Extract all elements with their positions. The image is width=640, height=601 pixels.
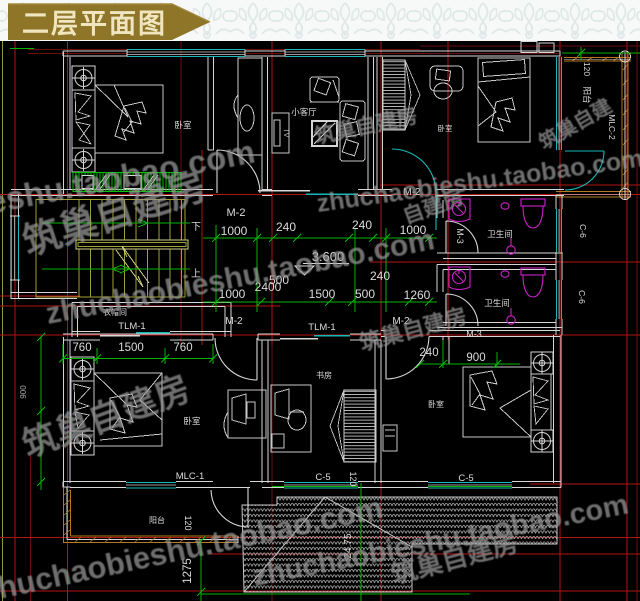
svg-text:240: 240 (276, 220, 296, 234)
svg-text:二层平面图: 二层平面图 (22, 9, 167, 39)
svg-text:M-3: M-3 (466, 329, 482, 339)
svg-text:900: 900 (19, 385, 28, 399)
svg-text:卫生间: 卫生间 (487, 229, 513, 239)
svg-text:下: 下 (191, 222, 201, 233)
svg-text:240: 240 (370, 269, 390, 283)
svg-text:1500: 1500 (118, 342, 144, 354)
svg-text:卧室: 卧室 (174, 120, 192, 130)
svg-text:书房: 书房 (316, 370, 332, 380)
svg-text:1000: 1000 (221, 224, 248, 238)
svg-text:M-2: M-2 (227, 207, 246, 219)
svg-text:卫生间: 卫生间 (484, 298, 510, 308)
svg-text:900: 900 (466, 352, 485, 364)
svg-text:1500: 1500 (309, 287, 336, 301)
svg-text:120: 120 (183, 515, 193, 530)
svg-text:120: 120 (348, 471, 358, 486)
svg-text:阳台: 阳台 (149, 515, 165, 525)
svg-text:1260: 1260 (404, 288, 431, 302)
svg-text:TLM-1: TLM-1 (118, 321, 145, 332)
svg-text:500: 500 (355, 287, 375, 301)
svg-text:TV: TV (282, 129, 289, 138)
svg-text:C-5: C-5 (315, 472, 330, 483)
svg-text:240: 240 (352, 218, 372, 232)
svg-text:小客厅: 小客厅 (291, 107, 317, 117)
svg-text:240: 240 (419, 347, 438, 359)
svg-text:卧室: 卧室 (438, 123, 453, 133)
svg-text:760: 760 (173, 342, 192, 354)
svg-text:C-5: C-5 (458, 473, 473, 484)
svg-text:760: 760 (72, 342, 91, 354)
svg-text:C-6: C-6 (577, 290, 587, 304)
svg-text:卧室: 卧室 (183, 416, 201, 426)
svg-text:M-2: M-2 (225, 316, 243, 327)
svg-text:C-6: C-6 (578, 224, 588, 238)
svg-text:120: 120 (582, 62, 592, 76)
svg-text:卧室: 卧室 (428, 399, 444, 409)
svg-text:M-3: M-3 (455, 228, 465, 244)
svg-text:TLM-1: TLM-1 (308, 322, 335, 333)
svg-text:阳台: 阳台 (582, 86, 592, 103)
svg-text:MLC-1: MLC-1 (176, 471, 205, 482)
